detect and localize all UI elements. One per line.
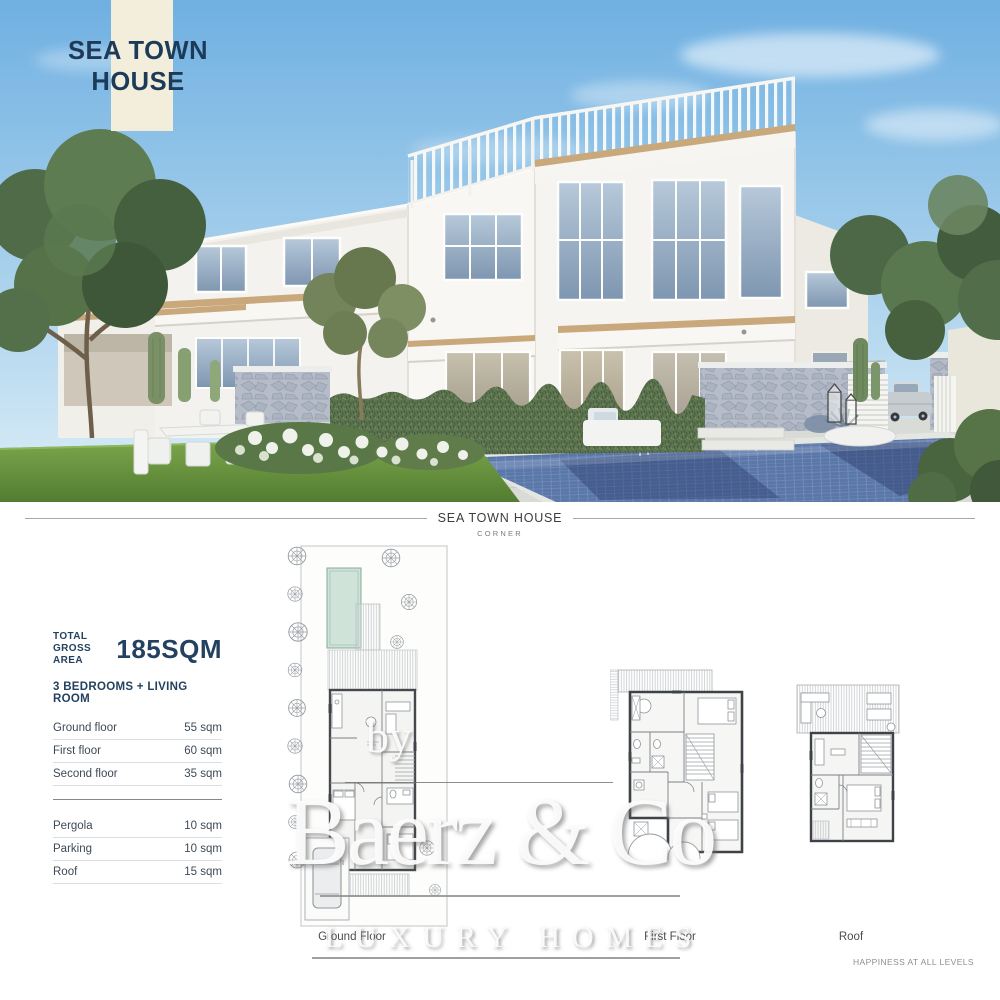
table-row: Ground floor 55 sqm [53, 717, 222, 740]
plan-deck [356, 604, 380, 650]
section-subtitle: CORNER [0, 529, 1000, 538]
total-gross-area-value: 185SQM [116, 634, 222, 665]
hero-title: SEA TOWN HOUSE [55, 36, 221, 98]
total-gross-area-label: TOTAL GROSS AREA [53, 631, 105, 668]
footer-tagline: HAPPINESS AT ALL LEVELS [853, 957, 974, 967]
plan-stairs [861, 735, 891, 773]
plan-stairs [686, 734, 714, 780]
watermark-tagline: LUXURY HOMES [0, 921, 1000, 955]
section-header: SEA TOWN HOUSE [25, 511, 975, 525]
section-title: SEA TOWN HOUSE [438, 511, 563, 525]
watermark-rule-bottom [312, 957, 680, 959]
hero-title-line2: HOUSE [55, 67, 221, 98]
hero-title-line1: SEA TOWN [55, 36, 221, 67]
header-rule-right [573, 518, 975, 519]
watermark-by: by [366, 710, 412, 763]
bedrooms-line: 3 BEDROOMS + LIVING ROOM [53, 681, 222, 705]
header-rule-left [25, 518, 427, 519]
plan-deck2 [328, 650, 417, 690]
watermark-brand: Baerz & Co [0, 776, 1000, 887]
table-row: First floor 60 sqm [53, 740, 222, 763]
brochure-page: SEA TOWN HOUSE SEA TOWN HOUSE CORNER TOT… [0, 0, 1000, 1000]
plan-pergola [618, 670, 712, 692]
watermark-rule-top [320, 895, 680, 897]
total-gross-area: TOTAL GROSS AREA 185SQM [53, 631, 222, 668]
